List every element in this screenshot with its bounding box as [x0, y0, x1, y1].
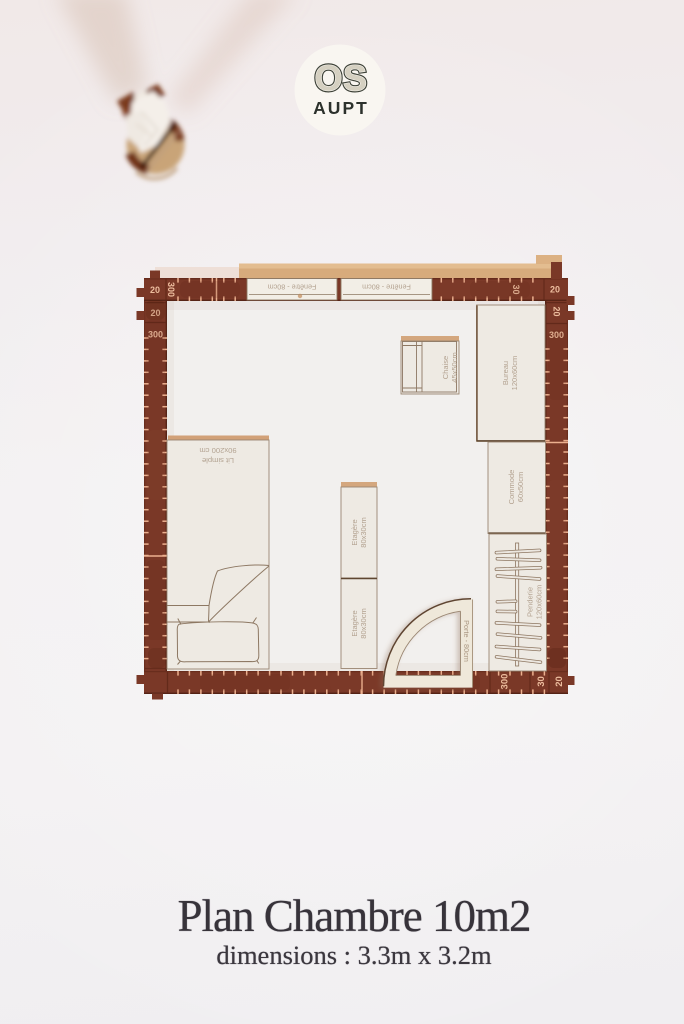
svg-text:Bureau: Bureau: [501, 361, 510, 385]
svg-text:60x50cm: 60x50cm: [516, 472, 525, 502]
svg-text:20: 20: [552, 306, 562, 316]
svg-text:Lit simple: Lit simple: [202, 456, 234, 465]
svg-text:30: 30: [536, 676, 547, 687]
svg-text:300: 300: [500, 674, 511, 690]
svg-text:Chaise: Chaise: [441, 356, 450, 379]
svg-text:Fenêtre - 80cm: Fenêtre - 80cm: [362, 283, 411, 292]
svg-text:45x50cm: 45x50cm: [450, 352, 459, 382]
svg-text:Fenêtre - 80cm: Fenêtre - 80cm: [268, 283, 317, 292]
svg-text:Commode: Commode: [507, 470, 516, 505]
svg-text:90x200 cm: 90x200 cm: [199, 446, 236, 455]
svg-text:AUPT: AUPT: [313, 98, 369, 118]
svg-text:20: 20: [150, 285, 160, 295]
svg-text:Penderie: Penderie: [526, 587, 535, 617]
svg-text:OS: OS: [314, 58, 367, 99]
svg-text:120x60cm: 120x60cm: [535, 585, 544, 620]
svg-text:Etagère: Etagère: [350, 610, 359, 636]
svg-text:120x60cm: 120x60cm: [510, 356, 519, 391]
svg-text:80x30cm: 80x30cm: [359, 608, 368, 638]
svg-text:20: 20: [550, 285, 560, 295]
svg-text:20: 20: [554, 676, 565, 687]
svg-text:80x30cm: 80x30cm: [359, 517, 368, 547]
svg-text:Etagère: Etagère: [350, 519, 359, 545]
svg-text:300: 300: [166, 282, 176, 297]
svg-text:Porte - 80cm: Porte - 80cm: [462, 620, 471, 662]
